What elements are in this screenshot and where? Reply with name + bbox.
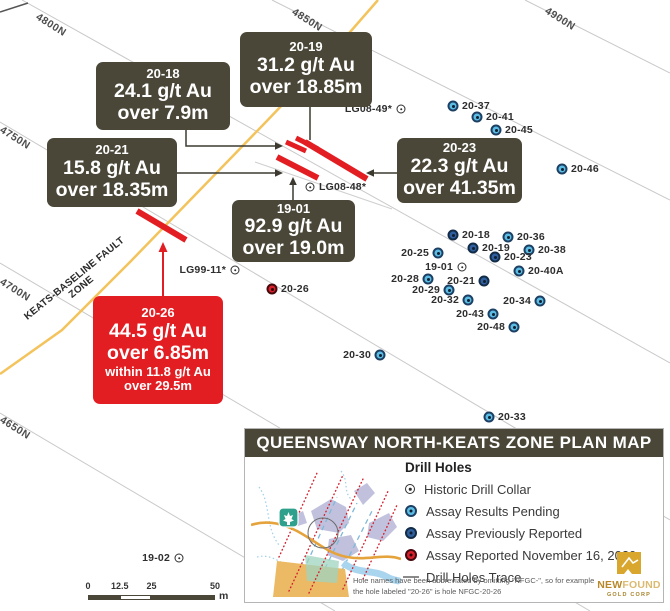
- drillhole-marker-20-23: [490, 252, 501, 263]
- callout-line: 31.2 g/t Au: [242, 55, 370, 77]
- legend-note-line1: Hole names have been abbreviated by omit…: [353, 576, 603, 587]
- callout-line: over 41.35m: [399, 178, 520, 200]
- callout-line: over 18.85m: [242, 77, 370, 99]
- callout-line: over 19.0m: [234, 238, 353, 260]
- drillhole-marker-20-41: [472, 112, 483, 123]
- callout-line: 15.8 g/t Au: [49, 158, 175, 180]
- drill-trace: [277, 157, 318, 178]
- callout-line: 44.5 g/t Au: [95, 321, 221, 343]
- drillhole-marker-20-40A: [514, 266, 525, 277]
- drillhole-label-20-23: 20-23: [504, 251, 532, 263]
- callout-line: 92.9 g/t Au: [234, 216, 353, 238]
- drillhole-marker-19-02: [175, 554, 184, 563]
- inset-area-green: [305, 555, 339, 583]
- drillhole-marker-LG08-49: [397, 105, 406, 114]
- callout-line: over 18.35m: [49, 180, 175, 202]
- arrowhead-up: [289, 177, 297, 185]
- drillhole-label-20-46: 20-46: [571, 163, 599, 175]
- map-corner-tick: [0, 3, 28, 12]
- drillhole-marker-19-01: [458, 263, 467, 272]
- drillhole-label-20-48: 20-48: [477, 321, 505, 333]
- drillhole-marker-20-32: [463, 295, 474, 306]
- legend-item-label: Assay Previously Reported: [426, 526, 582, 541]
- drillhole-marker-20-46: [557, 164, 568, 175]
- logo-wordmark: NEWFOUND: [597, 579, 661, 591]
- callout-line: over 29.5m: [95, 379, 221, 394]
- callout-line: 24.1 g/t Au: [98, 81, 228, 103]
- drillhole-marker-20-25: [433, 248, 444, 259]
- callout-20-19: 20-1931.2 g/t Auover 18.85m: [240, 32, 372, 107]
- drillhole-marker-20-43: [488, 309, 499, 320]
- scale-tick-12.5: 12.5: [111, 581, 129, 591]
- drillhole-label-20-33: 20-33: [498, 411, 526, 423]
- nov16-marker-icon: [405, 549, 417, 561]
- reported-marker-icon: [405, 527, 417, 539]
- callout-line: within 11.8 g/t Au: [95, 365, 221, 380]
- map-title: QUEENSWAY NORTH-KEATS ZONE PLAN MAP: [245, 429, 663, 457]
- scale-segment: [120, 595, 151, 600]
- drillhole-label-19-01: 19-01: [425, 261, 453, 273]
- scale-segment: [151, 595, 215, 600]
- scale-tick-25: 25: [146, 581, 156, 591]
- callout-line: over 7.9m: [98, 103, 228, 125]
- connector-20-18: [186, 130, 275, 146]
- drillhole-marker-20-45: [491, 125, 502, 136]
- arrowhead-right: [275, 142, 283, 150]
- logo-found: FOUND: [622, 579, 660, 591]
- queensway-plan-map: KEATS-BASELINE FAULT ZONE QUEENSWAY NORT…: [0, 0, 670, 611]
- drillhole-marker-20-21: [479, 276, 490, 287]
- drillhole-marker-LG08-48: [306, 183, 315, 192]
- drillhole-marker-LG99-11: [231, 266, 240, 275]
- legend-item-pending: Assay Results Pending: [405, 500, 661, 522]
- scale-tick-0: 0: [85, 581, 90, 591]
- drillhole-label-20-32: 20-32: [431, 294, 459, 306]
- scale-bar: 012.52550 m: [88, 581, 243, 607]
- callout-19-01: 19-0192.9 g/t Auover 19.0m: [232, 200, 355, 262]
- callout-line: over 6.85m: [95, 343, 221, 365]
- drillhole-label-20-45: 20-45: [505, 124, 533, 136]
- drillhole-label-20-41: 20-41: [486, 111, 514, 123]
- callout-20-21: 20-2115.8 g/t Auover 18.35m: [47, 138, 177, 207]
- drillhole-marker-20-33: [484, 412, 495, 423]
- callout-line: 20-19: [242, 40, 370, 55]
- drillhole-marker-20-18: [448, 230, 459, 241]
- callout-line: 20-26: [95, 306, 221, 321]
- scale-bar-segments: [88, 595, 215, 600]
- drillhole-marker-20-26: [267, 284, 278, 295]
- legend-note-line2: the hole labeled "20-26" is hole NFGC-20…: [353, 587, 603, 598]
- drillhole-label-LG99-11: LG99-11*: [179, 264, 226, 276]
- callout-line: 20-21: [49, 143, 175, 158]
- logo-subtitle: GOLD CORP: [597, 592, 661, 598]
- logo-new: NEW: [597, 579, 622, 591]
- callout-line: 20-18: [98, 67, 228, 82]
- drillhole-label-19-02: 19-02: [142, 552, 170, 564]
- drillhole-label-20-25: 20-25: [401, 247, 429, 259]
- pending-marker-icon: [405, 505, 417, 517]
- drillhole-label-LG08-48: LG08-48*: [319, 181, 366, 193]
- callout-20-26: 20-2644.5 g/t Auover 6.85mwithin 11.8 g/…: [93, 296, 223, 404]
- drillhole-marker-20-48: [509, 322, 520, 333]
- legend-item-historic: Historic Drill Collar: [405, 478, 661, 500]
- drillhole-marker-20-28: [423, 274, 434, 285]
- drillhole-marker-20-34: [535, 296, 546, 307]
- drillhole-label-20-30: 20-30: [343, 349, 371, 361]
- drillhole-marker-20-36: [503, 232, 514, 243]
- callout-line: 22.3 g/t Au: [399, 156, 520, 178]
- legend-header: Drill Holes: [405, 460, 661, 475]
- red-arrowhead-up: [159, 242, 168, 252]
- drillhole-label-20-34: 20-34: [503, 295, 531, 307]
- callout-20-18: 20-1824.1 g/t Auover 7.9m: [96, 62, 230, 130]
- trans-canada-highway-marker: [279, 508, 298, 527]
- drillhole-label-20-38: 20-38: [538, 244, 566, 256]
- legend-note: Hole names have been abbreviated by omit…: [353, 576, 603, 598]
- drillhole-marker-20-37: [448, 101, 459, 112]
- drillhole-label-20-36: 20-36: [517, 231, 545, 243]
- legend-panel: QUEENSWAY NORTH-KEATS ZONE PLAN MAP: [244, 428, 664, 603]
- callout-line: 19-01: [234, 202, 353, 217]
- drill-trace-fault-crossing: [137, 211, 186, 240]
- callout-20-23: 20-2322.3 g/t Auover 41.35m: [397, 138, 522, 203]
- drillhole-label-20-43: 20-43: [456, 308, 484, 320]
- newfound-logo-icon: [615, 551, 643, 577]
- drillhole-label-20-40A: 20-40A: [528, 265, 564, 277]
- historic-marker-icon: [405, 484, 415, 494]
- callout-line: 20-23: [399, 141, 520, 156]
- drillhole-label-20-18: 20-18: [462, 229, 490, 241]
- newfound-gold-logo: NEWFOUND GOLD CORP: [597, 551, 661, 598]
- legend-item-label: Assay Results Pending: [426, 504, 560, 519]
- legend-item-reported: Assay Previously Reported: [405, 522, 661, 544]
- scale-segment: [88, 595, 120, 600]
- drillhole-marker-20-30: [375, 350, 386, 361]
- drillhole-label-20-26: 20-26: [281, 283, 309, 295]
- legend-item-label: Historic Drill Collar: [424, 482, 531, 497]
- scale-unit: m: [219, 590, 228, 602]
- drillhole-marker-20-19: [468, 243, 479, 254]
